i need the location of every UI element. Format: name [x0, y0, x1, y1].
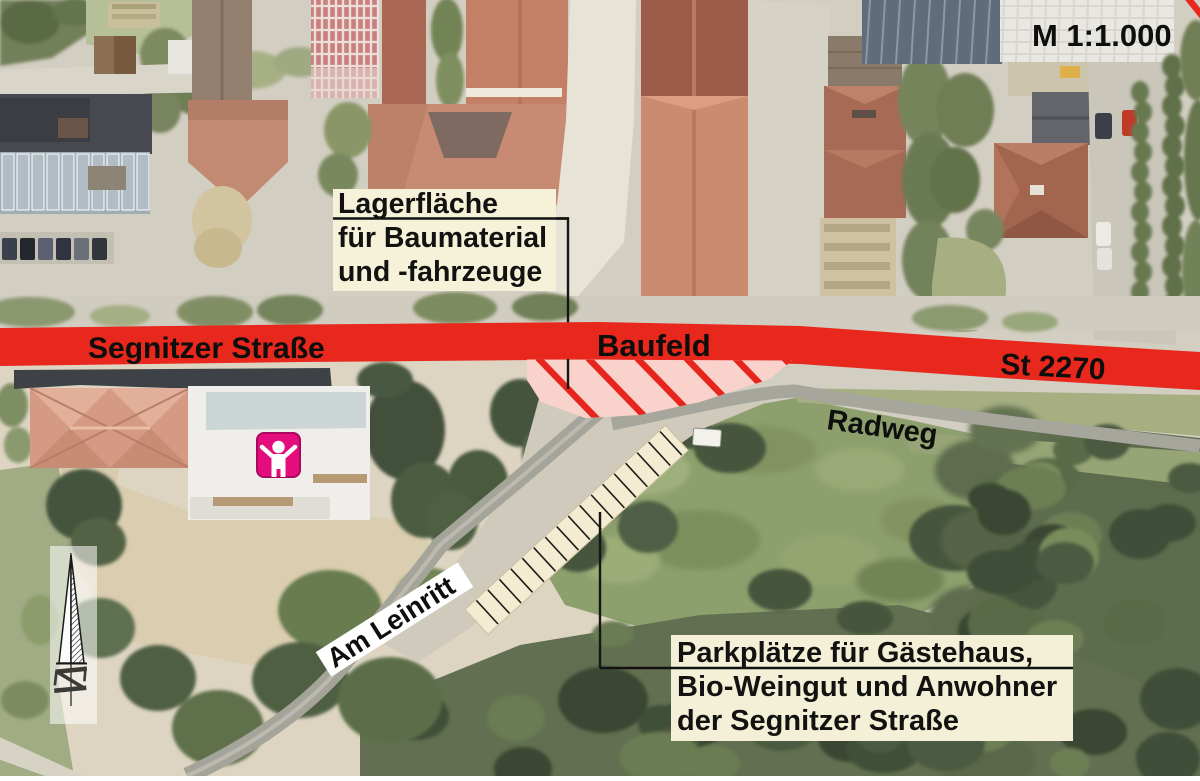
svg-text:für Baumaterial: für Baumaterial	[338, 222, 547, 254]
svg-text:Baufeld: Baufeld	[597, 328, 711, 363]
svg-text:und -fahrzeuge: und -fahrzeuge	[338, 256, 542, 288]
svg-text:Bio-Weingut und Anwohner: Bio-Weingut und Anwohner	[677, 671, 1057, 703]
svg-text:M 1:1.000: M 1:1.000	[1032, 18, 1172, 53]
svg-text:Parkplätze für Gästehaus,: Parkplätze für Gästehaus,	[677, 637, 1033, 669]
svg-text:der Segnitzer Straße: der Segnitzer Straße	[677, 705, 959, 737]
svg-text:Segnitzer Straße: Segnitzer Straße	[88, 332, 325, 365]
svg-text:St 2270: St 2270	[1000, 348, 1107, 386]
svg-text:Lagerfläche: Lagerfläche	[338, 188, 498, 220]
